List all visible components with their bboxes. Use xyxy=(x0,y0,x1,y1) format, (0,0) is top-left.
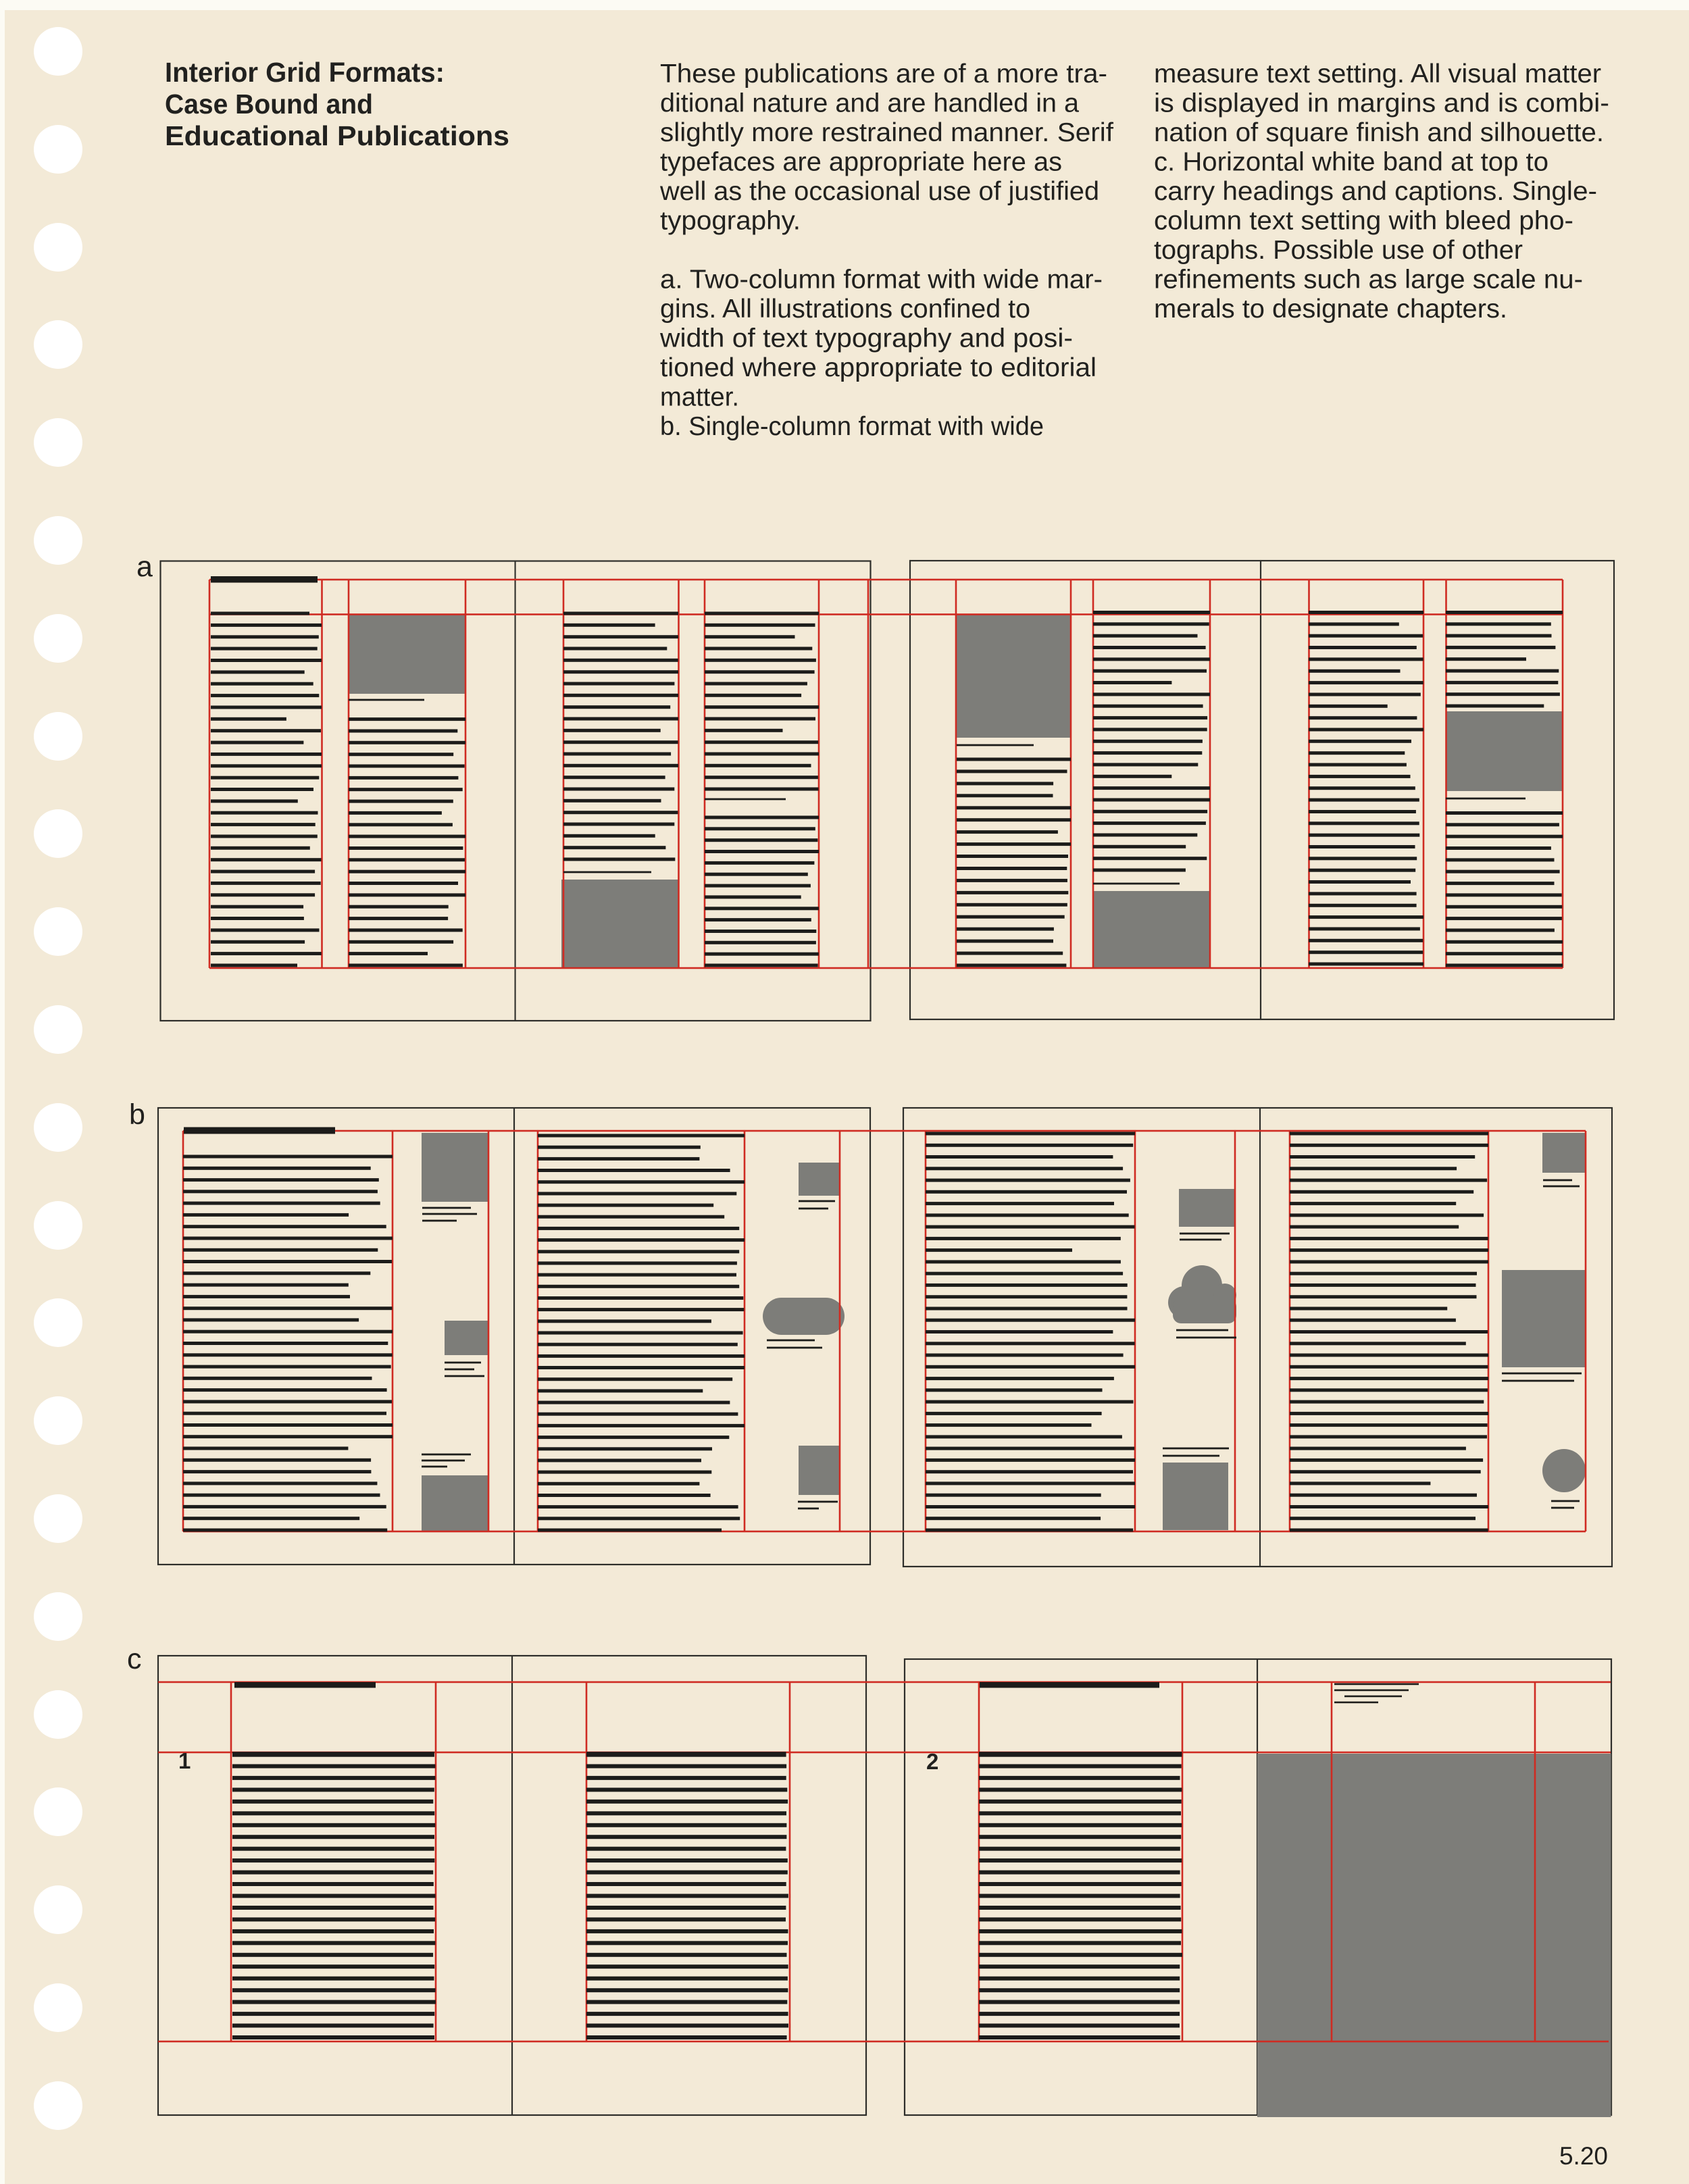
svg-text:tographs. Possible use of othe: tographs. Possible use of other xyxy=(1154,236,1523,265)
svg-text:Educational Publications: Educational Publications xyxy=(165,120,509,151)
svg-text:carry headings and captions. S: carry headings and captions. Single- xyxy=(1154,177,1597,206)
svg-text:c: c xyxy=(127,1643,142,1675)
svg-text:slightly more restrained manne: slightly more restrained manner. Serif xyxy=(660,118,1113,147)
svg-text:Case Bound and: Case Bound and xyxy=(165,88,373,120)
svg-text:ditional nature and are handle: ditional nature and are handled in a xyxy=(660,89,1079,118)
svg-text:b. Single-column format with w: b. Single-column format with wide xyxy=(660,412,1044,441)
svg-text:measure text setting. All visu: measure text setting. All visual matter xyxy=(1154,59,1601,88)
svg-text:is displayed in margins and is: is displayed in margins and is combi- xyxy=(1154,89,1609,118)
svg-text:a. Two-column format with wide: a. Two-column format with wide mar- xyxy=(660,265,1103,295)
svg-text:1: 1 xyxy=(178,1748,191,1773)
svg-text:well as the occasional use of: well as the occasional use of justified xyxy=(659,177,1099,206)
svg-text:typefaces are appropriate here: typefaces are appropriate here as xyxy=(660,148,1062,177)
svg-text:gins. All illustrations confin: gins. All illustrations confined to xyxy=(660,295,1030,324)
svg-text:5.20: 5.20 xyxy=(1559,2142,1608,2170)
svg-text:typography.: typography. xyxy=(660,207,801,236)
svg-text:2: 2 xyxy=(926,1749,938,1774)
svg-text:width of text typography and p: width of text typography and posi- xyxy=(659,324,1073,353)
svg-text:nation of square finish and si: nation of square finish and silhouette. xyxy=(1154,118,1604,147)
svg-text:c. Horizontal white band at to: c. Horizontal white band at top to xyxy=(1154,148,1548,177)
svg-text:refinements such as large scal: refinements such as large scale nu- xyxy=(1154,265,1583,295)
svg-text:a: a xyxy=(136,551,153,583)
svg-text:merals to designate chapters.: merals to designate chapters. xyxy=(1154,295,1507,324)
svg-text:These publications are of a mo: These publications are of a more tra- xyxy=(660,59,1107,88)
svg-text:b: b xyxy=(129,1098,145,1131)
svg-text:column text setting with bleed: column text setting with bleed pho- xyxy=(1154,207,1573,236)
svg-text:tioned where appropriate to ed: tioned where appropriate to editorial xyxy=(660,353,1096,382)
svg-text:Interior Grid Formats:: Interior Grid Formats: xyxy=(165,57,445,88)
svg-text:matter.: matter. xyxy=(660,383,739,412)
